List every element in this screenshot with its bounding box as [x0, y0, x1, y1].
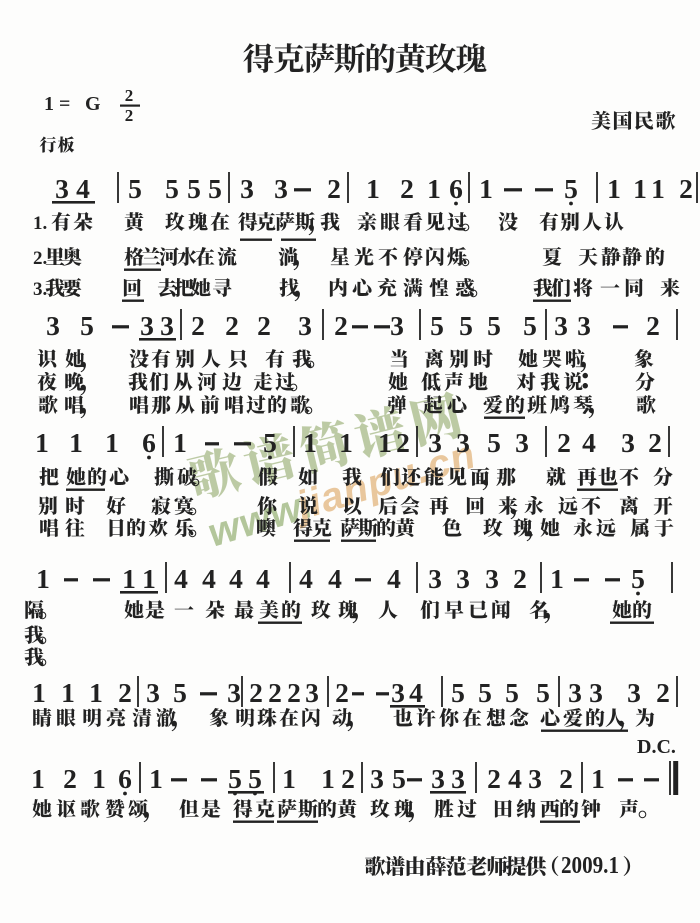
- svg-text:111615111233532432: 111615111233532432: [35, 427, 662, 458]
- svg-text:D.C.: D.C.: [637, 736, 676, 758]
- svg-text:1112353222323455553332: 1112353222323455553332: [32, 677, 670, 708]
- svg-text:2: 2: [125, 86, 134, 105]
- svg-text:3.: 3.: [33, 279, 47, 300]
- svg-text:1=G: 1=G: [44, 93, 101, 115]
- svg-text:2: 2: [125, 106, 134, 125]
- svg-text:1216155112353324321: 1216155112353324321: [31, 763, 605, 794]
- svg-text:2009.1: 2009.1: [561, 853, 619, 879]
- svg-text:1.: 1.: [33, 213, 47, 234]
- svg-text:1114444444333215: 1114444444333215: [36, 563, 645, 594]
- svg-text:2.: 2.: [33, 248, 47, 269]
